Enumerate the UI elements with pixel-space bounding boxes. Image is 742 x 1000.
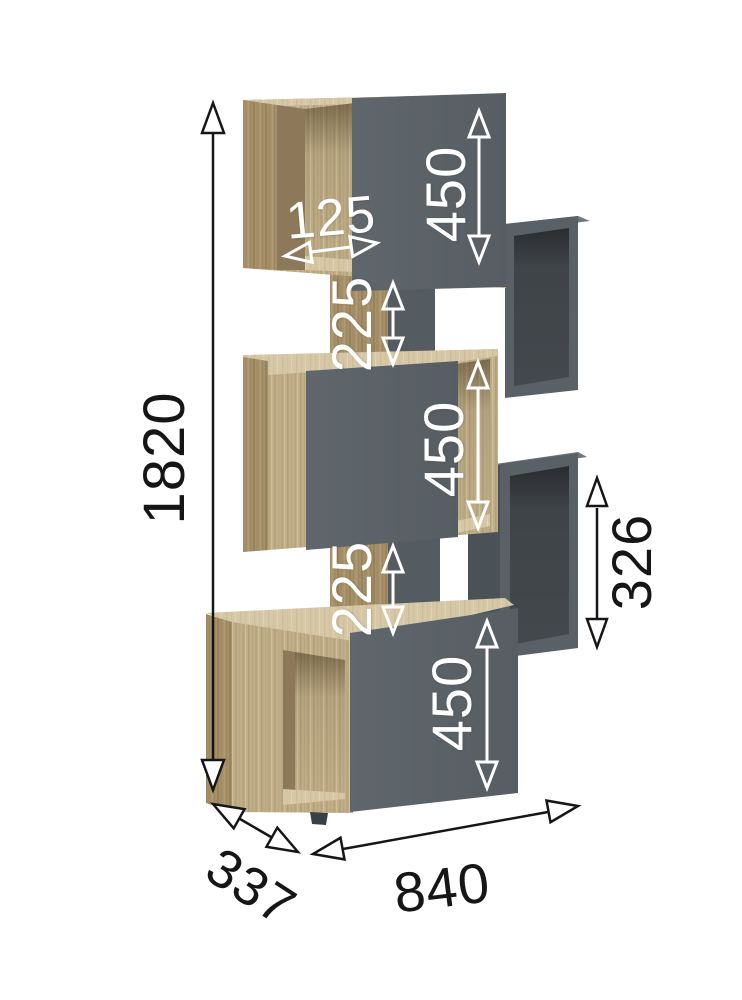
label-top-door-height: 450	[418, 146, 474, 242]
furniture-dimension-diagram: 1820 450 125 225 450 225 450 326 337 840	[0, 0, 742, 1000]
middle-cabinet-left-panel	[243, 357, 268, 552]
label-upper-gap: 225	[324, 276, 380, 372]
label-side-cube-height: 326	[604, 514, 660, 610]
label-top-niche-width: 125	[284, 188, 378, 248]
upper-right-cube	[505, 216, 590, 398]
upper-right-cube-interior-shadow	[514, 228, 569, 386]
diagram-canvas	[0, 0, 742, 1000]
bottom-cabinet-niche-shadow	[295, 652, 345, 803]
top-cabinet-left-panel	[243, 100, 277, 270]
label-lower-gap: 225	[324, 541, 380, 637]
label-overall-width: 840	[391, 854, 494, 921]
bottom-cabinet-niche-left-wall	[283, 650, 295, 805]
label-overall-height: 1820	[136, 391, 194, 524]
lower-right-cube-interior-shadow	[510, 466, 569, 645]
label-bottom-door-height: 450	[424, 655, 480, 751]
label-middle-door-height: 450	[416, 401, 472, 497]
bottom-cabinet-foot	[310, 812, 328, 825]
